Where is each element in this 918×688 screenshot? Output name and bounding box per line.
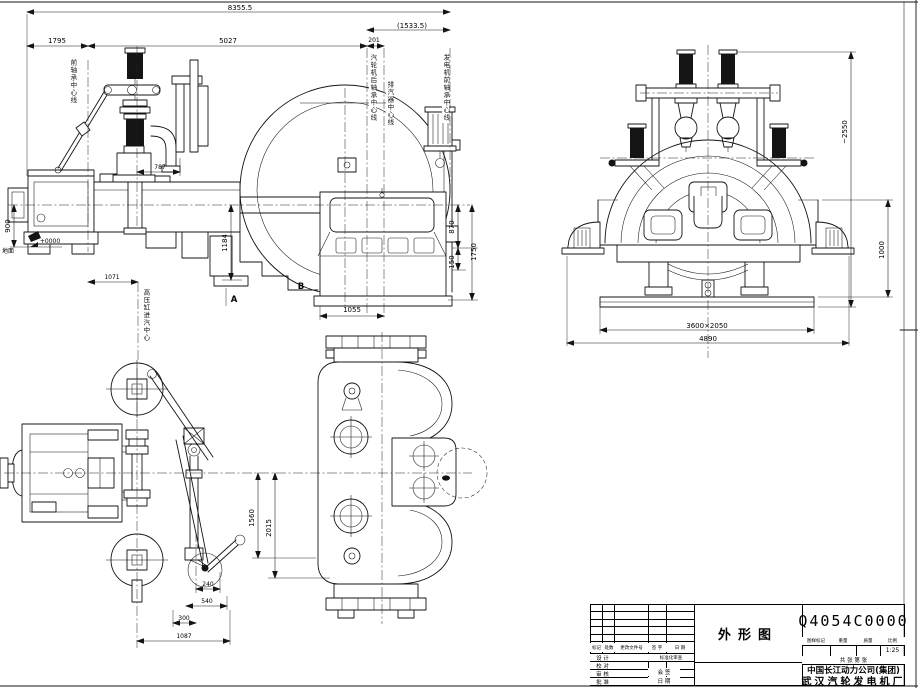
rev-header-date: 日 期 — [666, 643, 694, 652]
role-approve: 批 准 — [590, 678, 615, 685]
title-block-line — [590, 611, 694, 612]
plan-view-dimensions — [137, 473, 330, 645]
drawing-number: Q4054C0000 — [802, 604, 905, 637]
title-block-line — [590, 634, 694, 635]
title-block-line — [590, 641, 694, 642]
info-header-mark: 图样标记 — [802, 637, 830, 645]
title-block-line — [590, 626, 694, 627]
plan-view-geometry — [0, 336, 487, 618]
dim-1000: 1000 — [878, 241, 886, 259]
rev-header-doc: 更改文件号 — [615, 643, 648, 652]
drawing-title: 外形图 — [694, 604, 802, 662]
info-header-weight: 重量 — [830, 637, 856, 645]
dim-2015: 2015 — [265, 519, 273, 537]
title-block-line — [694, 662, 802, 663]
dim-300: 300 — [178, 615, 190, 622]
dim-870: 870 — [448, 220, 456, 233]
marker-b: B — [298, 282, 304, 292]
dim-1071: 1071 — [104, 274, 119, 281]
dim-1560: 1560 — [248, 509, 256, 527]
dim-1795: 1795 — [48, 37, 66, 45]
end-view-centerlines — [600, 45, 816, 358]
std-review-label: 标准化审查 — [648, 654, 694, 661]
dim-3600x2050: 3600×2050 — [686, 322, 728, 330]
dim-5027: 5027 — [219, 37, 237, 45]
date-label: 日 期 — [648, 677, 680, 685]
turbine-rear-bearing-centerline-label: 汽轮机后轴承中心线 — [369, 53, 376, 123]
dim-150: 150 — [448, 255, 456, 268]
info-header-scale: 比例 — [880, 637, 905, 645]
company-name-line2: 武汉汽轮发电机厂 — [802, 674, 905, 686]
drawing-linework: 8355.5 (1533.5) 1795 5027 201 787 900 +0… — [0, 0, 918, 688]
dim-1055: 1055 — [343, 306, 361, 314]
role-design: 设 计 — [590, 654, 615, 661]
drawing-sheet: 8355.5 (1533.5) 1795 5027 201 787 900 +0… — [0, 0, 918, 688]
front-bearing-centerline-label: 前轴承中心线 — [69, 58, 76, 105]
dim-overall-length: 8355.5 — [228, 4, 253, 12]
dim-240: 240 — [202, 581, 214, 588]
role-review: 审 核 — [590, 670, 615, 677]
countersign-label: 会 签 — [648, 668, 680, 676]
rev-header-mark: 标记 — [590, 643, 603, 652]
dim-540: 540 — [201, 598, 213, 605]
dim-2550: ~2550 — [841, 120, 849, 144]
rev-header-count: 处数 — [603, 643, 615, 652]
level-mark: +0000 — [40, 238, 60, 245]
generator-front-bearing-centerline-label: 发电机前轴承中心线 — [442, 53, 449, 123]
rev-header-sign: 签 字 — [648, 643, 666, 652]
ground-label: 地面 — [2, 247, 14, 255]
scale-value: 1:25 — [880, 645, 905, 656]
dim-1750: 1750 — [470, 243, 478, 261]
hp-inlet-centerline-label: 高压缸进汽中心 — [142, 288, 149, 343]
dim-1087: 1087 — [176, 633, 191, 640]
dim-4890: 4890 — [699, 335, 717, 343]
marker-a: A — [231, 295, 238, 305]
dim-201: 201 — [368, 37, 380, 44]
dim-787: 787 — [154, 164, 166, 171]
info-header-mass: 质量 — [856, 637, 880, 645]
dim-900: 900 — [4, 219, 12, 232]
dim-generator-group: (1533.5) — [397, 22, 427, 30]
exhaust-centerline-label: 排汽器中心线 — [386, 80, 393, 127]
dim-1184: 1184 — [221, 234, 229, 252]
role-check: 校 对 — [590, 662, 615, 669]
title-block-line — [590, 619, 694, 620]
